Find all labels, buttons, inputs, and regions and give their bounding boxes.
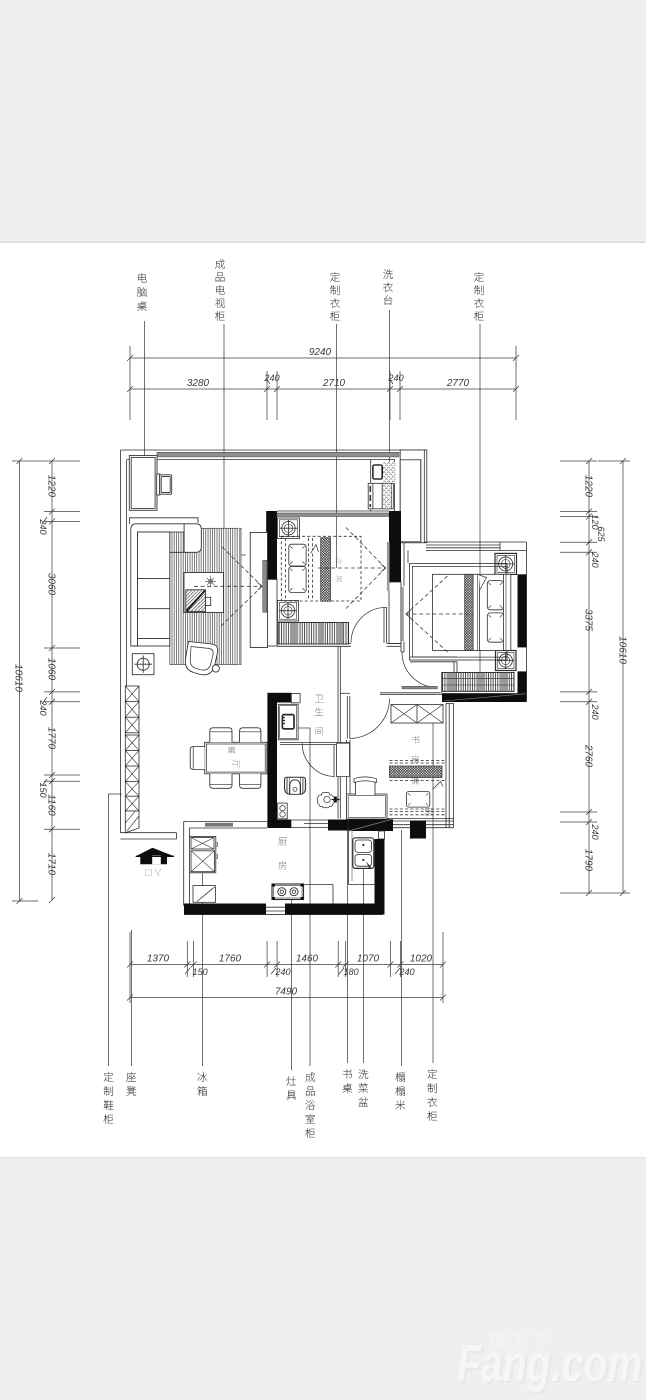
- svg-text:1070: 1070: [357, 954, 380, 965]
- svg-text:2760: 2760: [583, 744, 594, 768]
- svg-text:1710: 1710: [46, 853, 57, 876]
- svg-text:240: 240: [590, 703, 600, 720]
- svg-text:1790: 1790: [583, 849, 594, 872]
- svg-text:1460: 1460: [296, 954, 319, 965]
- svg-text:240: 240: [38, 699, 48, 716]
- svg-text:1060: 1060: [46, 658, 57, 681]
- svg-text:3375: 3375: [583, 609, 594, 632]
- svg-text:240: 240: [38, 518, 48, 535]
- svg-text:240: 240: [387, 373, 404, 383]
- svg-text:180: 180: [343, 967, 359, 977]
- svg-text:625: 625: [596, 526, 606, 542]
- svg-text:240: 240: [398, 967, 415, 977]
- svg-text:Fang.com: Fang.com: [457, 1334, 642, 1393]
- svg-text:1020: 1020: [410, 954, 433, 965]
- svg-text:7490: 7490: [275, 987, 298, 998]
- svg-text:240: 240: [263, 373, 280, 383]
- svg-text:1220: 1220: [46, 475, 57, 498]
- svg-text:3060: 3060: [46, 573, 57, 596]
- svg-text:240: 240: [590, 551, 600, 568]
- svg-text:10610: 10610: [13, 664, 24, 692]
- svg-text:3280: 3280: [187, 378, 210, 389]
- svg-text:1220: 1220: [583, 475, 594, 498]
- svg-text:10610: 10610: [617, 636, 628, 664]
- svg-text:1770: 1770: [46, 727, 57, 750]
- svg-text:240: 240: [274, 967, 291, 977]
- svg-text:240: 240: [590, 823, 600, 840]
- svg-text:1370: 1370: [147, 954, 170, 965]
- svg-text:150: 150: [192, 967, 208, 977]
- svg-text:2710: 2710: [322, 378, 346, 389]
- svg-text:1760: 1760: [219, 954, 242, 965]
- svg-text:2770: 2770: [446, 378, 470, 389]
- svg-text:1160: 1160: [46, 794, 57, 816]
- svg-text:9240: 9240: [309, 347, 332, 358]
